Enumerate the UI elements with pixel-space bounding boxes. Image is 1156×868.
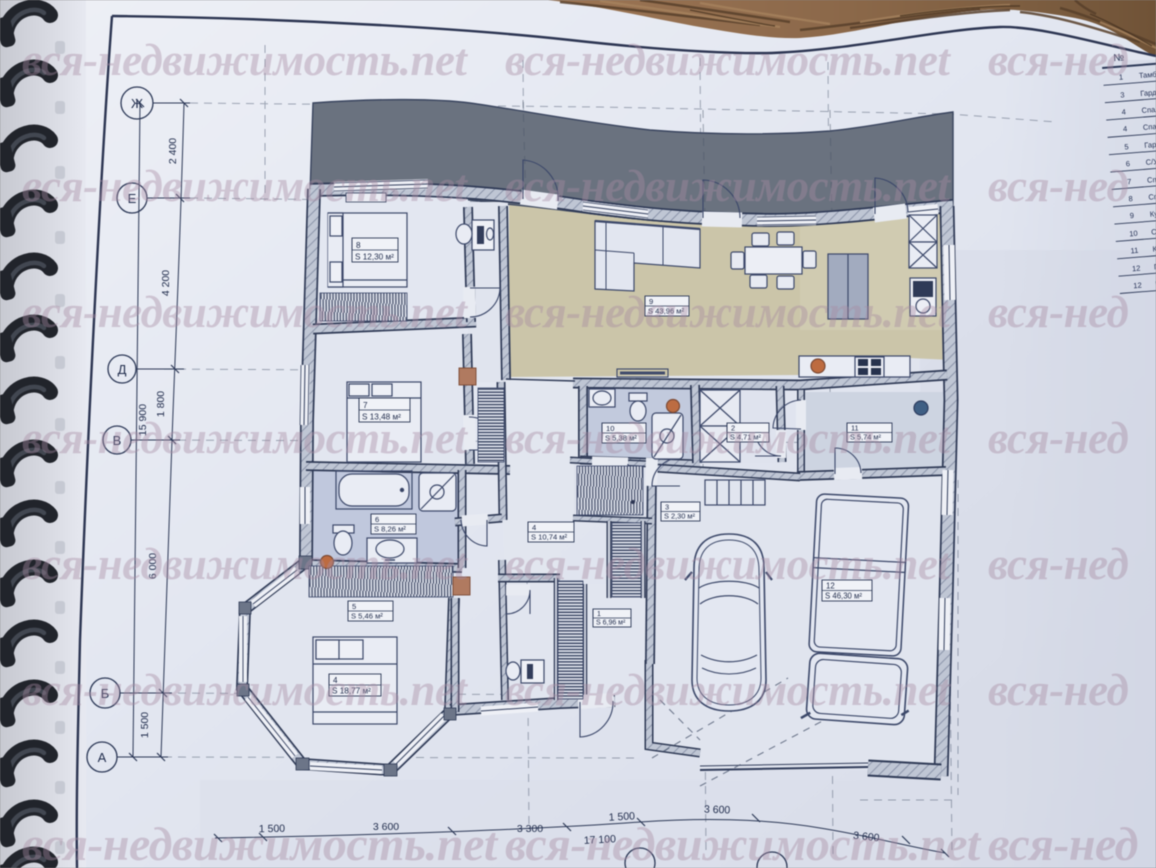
svg-text:3: 3: [665, 503, 669, 512]
svg-text:вся-нед: вся-нед: [988, 413, 1128, 463]
svg-text:вся-недвижимость.net: вся-недвижимость.net: [22, 161, 468, 211]
svg-text:Д: Д: [118, 362, 127, 377]
svg-text:вся-недвижимость.net: вся-недвижимость.net: [505, 287, 951, 337]
svg-text:С/У: С/У: [1151, 227, 1156, 237]
svg-text:вся-нед: вся-нед: [988, 287, 1128, 337]
svg-text:5: 5: [1124, 142, 1129, 151]
svg-text:вся-недвижимость.net: вся-недвижимость.net: [22, 35, 468, 85]
svg-text:А: А: [98, 750, 107, 765]
svg-text:S 5,46 м²: S 5,46 м²: [351, 612, 383, 621]
svg-text:Кухня: Кухня: [1149, 208, 1156, 219]
svg-text:6: 6: [375, 515, 379, 524]
svg-text:Спальня: Спальня: [1147, 173, 1156, 184]
svg-text:8: 8: [356, 241, 361, 250]
svg-text:9: 9: [1129, 211, 1134, 220]
svg-text:S 8,26 м²: S 8,26 м²: [374, 525, 406, 534]
svg-text:4: 4: [1121, 107, 1126, 116]
svg-text:12: 12: [1133, 281, 1142, 291]
svg-text:вся-недвижимость.net: вся-недвижимость.net: [22, 818, 499, 868]
svg-text:4: 4: [1123, 124, 1128, 133]
svg-text:вся-недвижимость.net: вся-недвижимость.net: [22, 539, 468, 589]
svg-text:3 600: 3 600: [704, 804, 731, 817]
svg-text:Гардероб: Гардероб: [1144, 138, 1156, 150]
svg-text:вся-недвижимость.net: вся-недвижимость.net: [505, 413, 951, 463]
svg-text:Спальня: Спальня: [1148, 190, 1156, 201]
svg-text:вся-нед: вся-нед: [988, 665, 1128, 715]
svg-text:11: 11: [1130, 246, 1138, 256]
svg-text:7: 7: [363, 401, 368, 410]
svg-text:3: 3: [1120, 90, 1125, 99]
svg-text:вся-недвижимость.net: вся-недвижимость.net: [505, 665, 951, 715]
svg-text:1 500: 1 500: [139, 712, 151, 738]
svg-text:вся-недвижимость.net: вся-недвижимость.net: [22, 665, 468, 715]
svg-text:вся-недвижимость.net: вся-недвижимость.net: [22, 287, 468, 337]
svg-text:S 12,30 м²: S 12,30 м²: [355, 253, 394, 262]
svg-text:Спальня: Спальня: [1141, 104, 1156, 115]
svg-text:вся-нед: вся-нед: [988, 539, 1128, 589]
svg-text:S 46,30 м²: S 46,30 м²: [825, 592, 862, 601]
svg-text:1: 1: [597, 611, 601, 618]
svg-text:S 2,30 м²: S 2,30 м²: [664, 512, 696, 521]
svg-text:вся-нед: вся-нед: [988, 35, 1128, 85]
svg-text:вся-недвижимость.net: вся-недвижимость.net: [505, 161, 951, 211]
svg-text:10: 10: [1129, 229, 1138, 239]
svg-text:вся-недвижимость.net: вся-недвижимость.net: [22, 413, 468, 463]
svg-text:Спальня: Спальня: [1143, 121, 1156, 132]
svg-text:S 6,96 м²: S 6,96 м²: [596, 620, 626, 627]
svg-text:8: 8: [1128, 194, 1133, 203]
svg-text:12: 12: [1132, 264, 1141, 274]
svg-text:5: 5: [352, 602, 356, 611]
svg-text:Гардероб: Гардероб: [1140, 87, 1156, 99]
svg-text:вся-недвижимость.net: вся-недвижимость.net: [505, 35, 951, 85]
svg-text:Тамбур: Тамбур: [1139, 69, 1156, 80]
svg-text:вся-недвижимость.net: вся-недвижимость.net: [505, 539, 951, 589]
svg-text:вся-нед: вся-нед: [988, 818, 1138, 868]
svg-text:вся-нед: вся-нед: [988, 161, 1128, 211]
svg-text:вся-недвижимость.net: вся-недвижимость.net: [505, 818, 982, 868]
svg-text:4: 4: [532, 523, 536, 532]
svg-text:С/У: С/У: [1145, 157, 1156, 167]
